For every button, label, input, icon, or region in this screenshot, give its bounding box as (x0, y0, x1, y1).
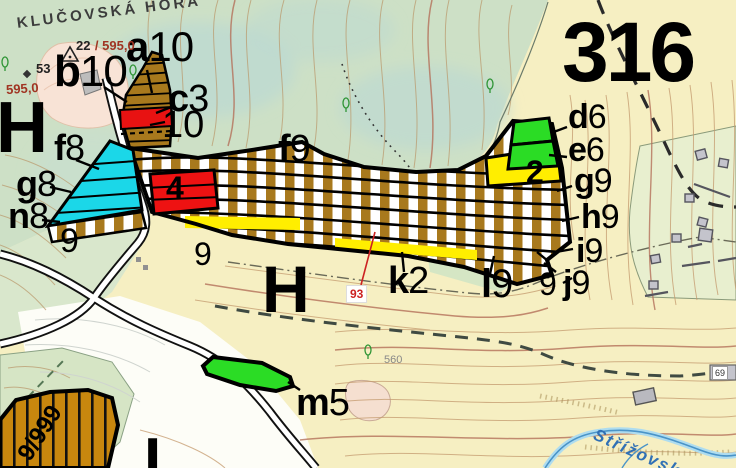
big-letter-h-center: H (262, 256, 310, 322)
stand-label-a10: a10 (126, 26, 193, 68)
building-69-label: 69 (712, 366, 728, 380)
stand-label-i9: i9 (576, 234, 602, 268)
label-9-right: 9 (539, 268, 557, 300)
forestry-map: KLUČOVSKÁ HORA 316 H H L a10 b10 c3 10 f… (0, 0, 736, 468)
label-4-red-stand: 4 (166, 172, 184, 204)
stand-label-l9: l9 (481, 264, 512, 304)
stand-label-g9: g9 (574, 164, 612, 198)
big-letter-h-left: H (0, 92, 48, 164)
stand-bottom-left-polygon (0, 390, 118, 468)
stand-label-k2: k2 (388, 262, 428, 300)
spot-elevation: 595,0 (6, 81, 39, 96)
label-2-yellow-stand: 2 (526, 156, 544, 188)
label-9-mid: 9 (194, 238, 212, 270)
stand-label-d6: d6 (568, 100, 606, 134)
stand-label-b10: b10 (54, 50, 127, 94)
stand-label-10: 10 (162, 106, 204, 144)
spot-elevation-partial: 53 (36, 62, 50, 75)
contour-label-560: 560 (384, 355, 402, 366)
big-letter-bottom-partial: L (144, 430, 182, 468)
label-93-box: 93 (346, 285, 367, 303)
gardens-area (629, 126, 736, 300)
stand-label-f8: f8 (54, 130, 84, 166)
stand-label-j9: j9 (563, 266, 589, 300)
stand-label-f9: f9 (278, 130, 310, 168)
region-number: 316 (562, 10, 693, 94)
stand-label-m5: m5 (296, 384, 349, 422)
label-9-left: 9 (60, 224, 79, 258)
stand-label-h9: h9 (581, 200, 619, 234)
summit-elevation: 22 / 595,0 (76, 38, 135, 54)
stand-label-n8: n8 (8, 198, 48, 234)
